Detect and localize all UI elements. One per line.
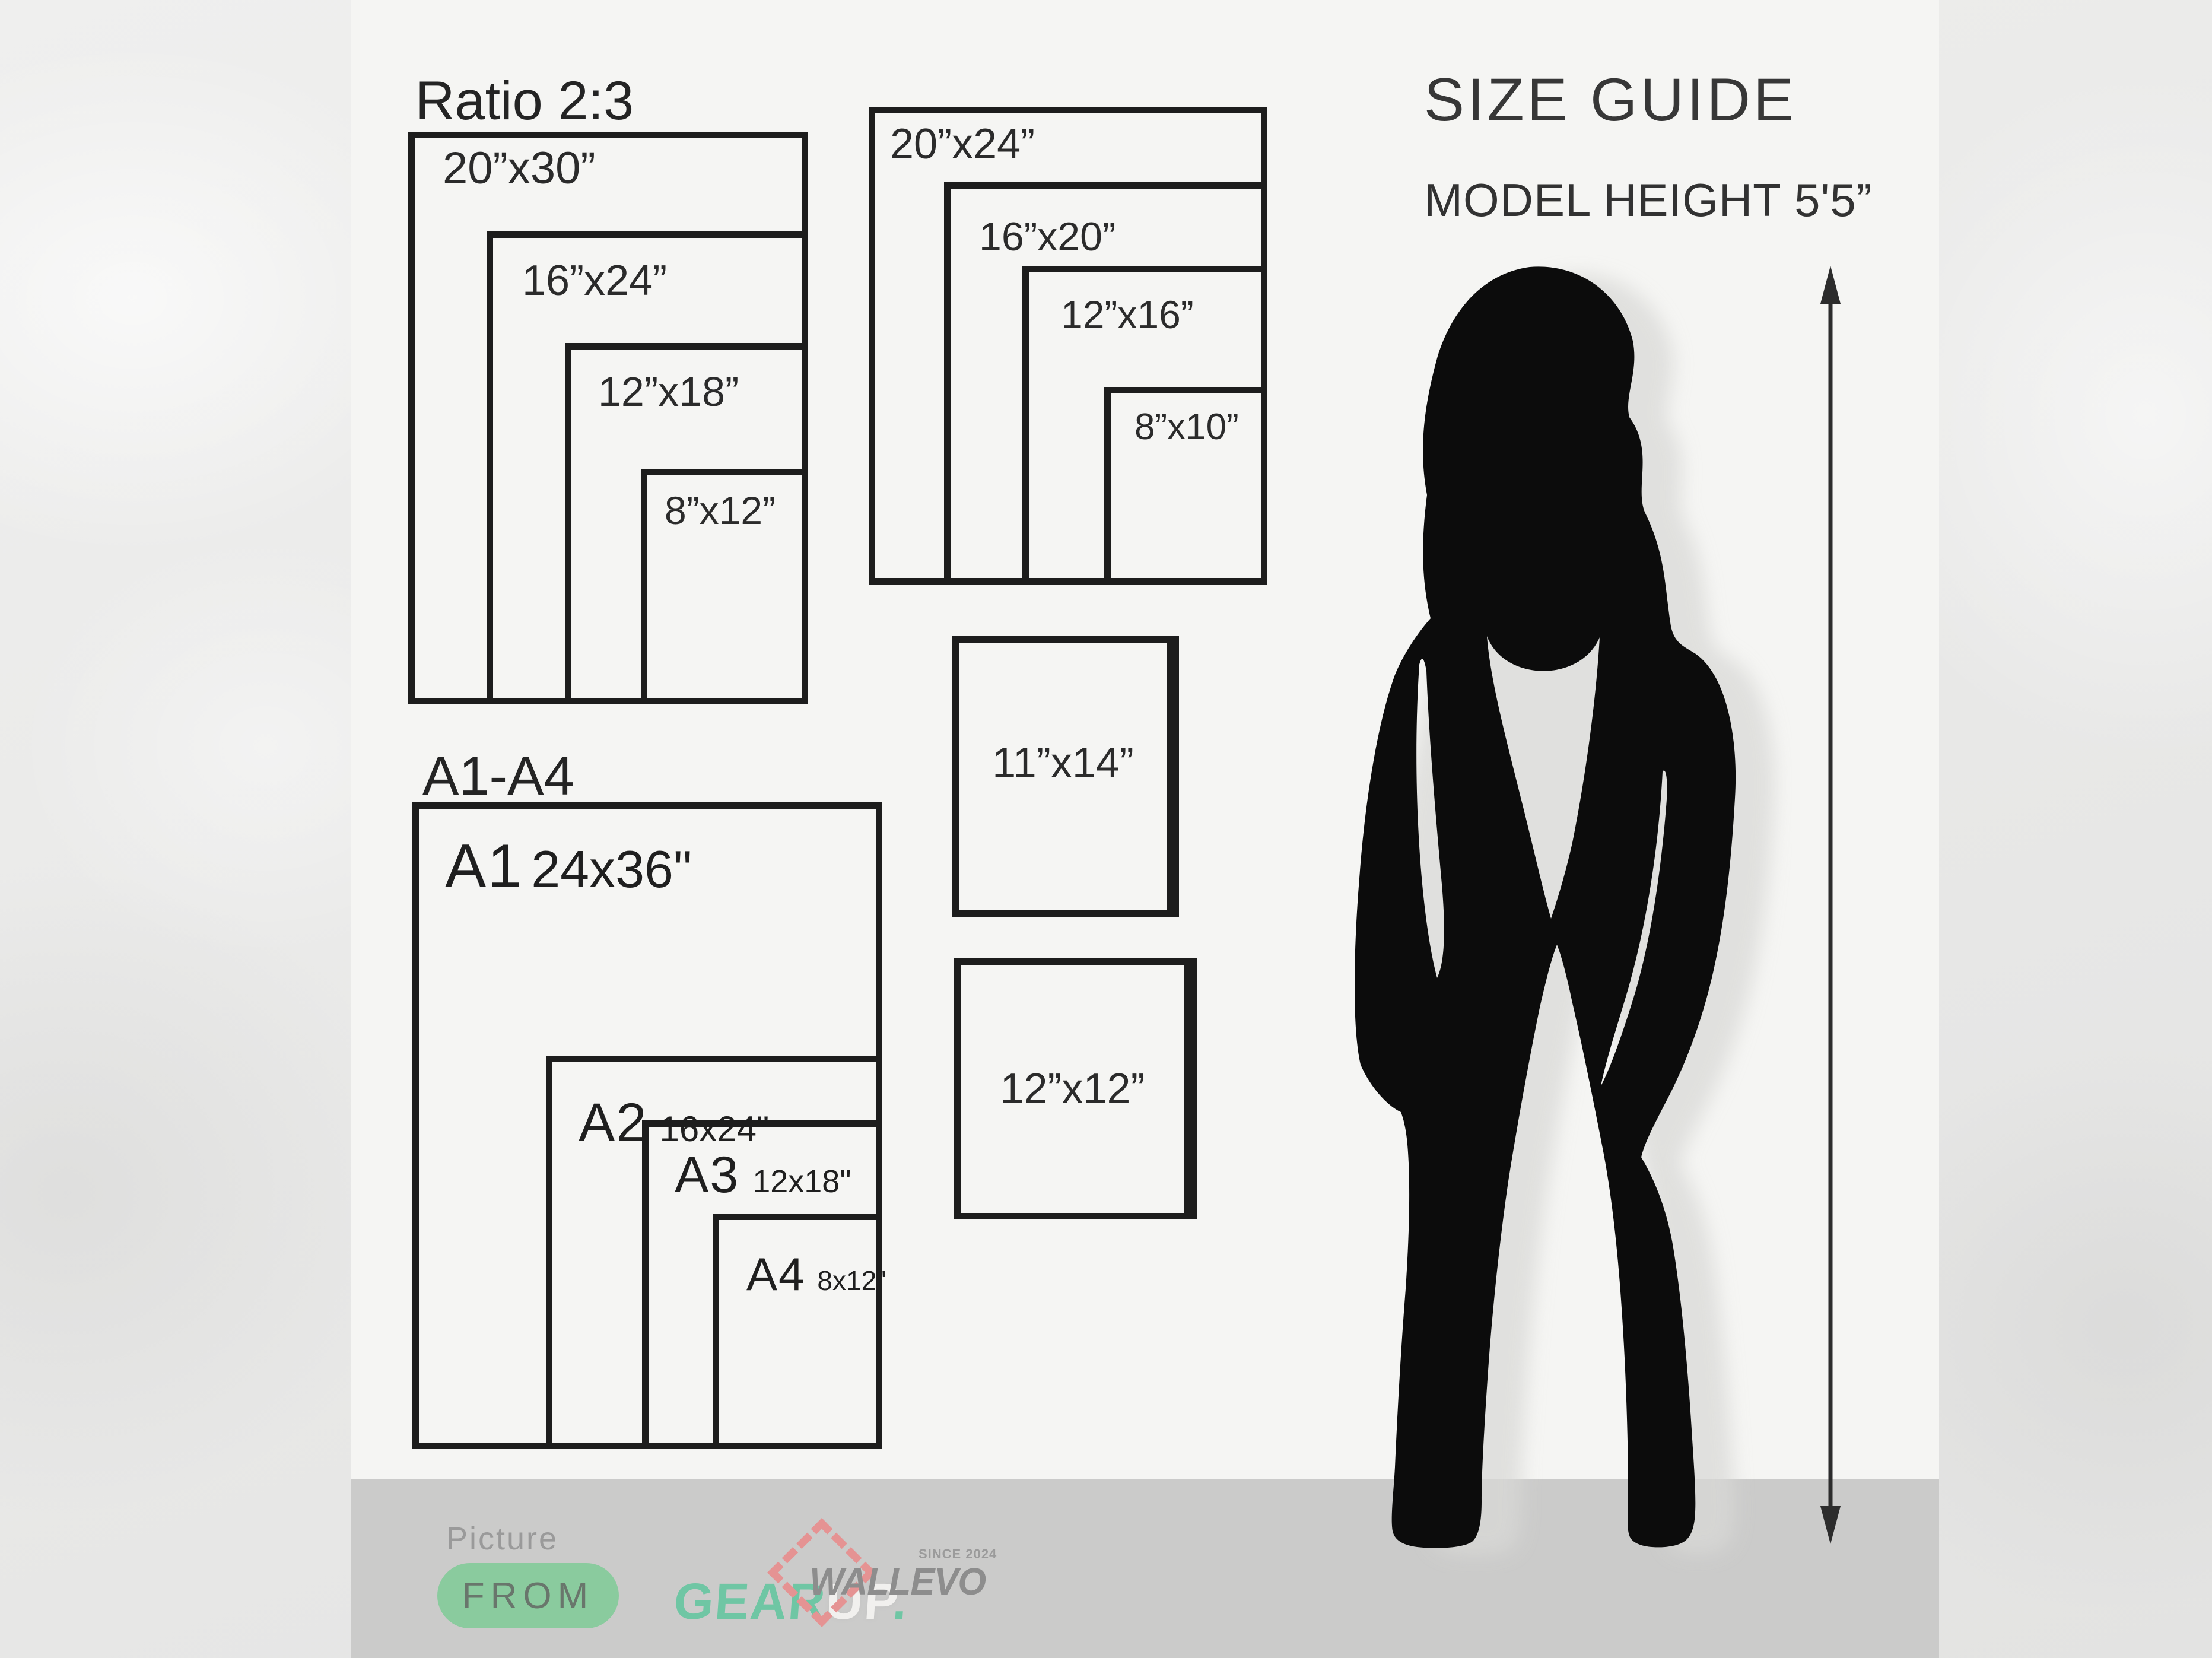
size-label: 12”x16” — [1061, 292, 1194, 337]
size-label-row: A1 24x36" — [445, 831, 692, 902]
paper-size: 24x36" — [531, 839, 692, 900]
size-label: 16”x24” — [522, 256, 667, 305]
from-badge-label: FROM — [462, 1575, 595, 1617]
paper-code: A3 — [675, 1146, 739, 1205]
paper-code: A2 — [579, 1092, 648, 1154]
paper-code: A4 — [746, 1247, 805, 1301]
size-label: 20”x30” — [443, 142, 596, 194]
ratio-group-title: Ratio 2:3 — [415, 70, 634, 132]
from-badge: FROM — [437, 1563, 619, 1628]
size-label: 8”x10” — [1134, 406, 1239, 448]
wallevo-brand-text: WALLEVO — [809, 1559, 986, 1603]
size-label: 11”x14” — [959, 739, 1167, 787]
model-height-label: MODEL HEIGHT 5'5” — [1424, 173, 1873, 227]
size-label-row: A3 12x18" — [675, 1146, 851, 1205]
paper-size: 8x12" — [817, 1265, 886, 1297]
size-rect-12x12: 12”x12” — [954, 958, 1197, 1219]
size-rect-a4: A4 8x12" — [713, 1214, 882, 1449]
since-label: SINCE 2024 — [919, 1546, 997, 1562]
paper-code: A1 — [445, 831, 523, 902]
page-title: SIZE GUIDE — [1424, 65, 1797, 135]
size-guide-infographic: Ratio 2:3 20”x30” 16”x24” 12”x18” 8”x12”… — [0, 0, 2212, 1658]
model-silhouette — [1293, 255, 1792, 1573]
size-rect-11x14: 11”x14” — [952, 636, 1179, 917]
height-arrow-icon — [1804, 261, 1857, 1549]
paper-size: 12x18" — [752, 1163, 851, 1200]
size-label: 12”x12” — [961, 1065, 1184, 1113]
size-label: 8”x12” — [665, 488, 776, 533]
picture-label: Picture — [446, 1520, 558, 1557]
size-label: 20”x24” — [890, 120, 1035, 169]
size-label-row: A4 8x12" — [746, 1247, 886, 1301]
size-label: 16”x20” — [979, 214, 1116, 260]
size-label: 12”x18” — [598, 368, 739, 415]
a-series-group-title: A1-A4 — [422, 745, 574, 808]
